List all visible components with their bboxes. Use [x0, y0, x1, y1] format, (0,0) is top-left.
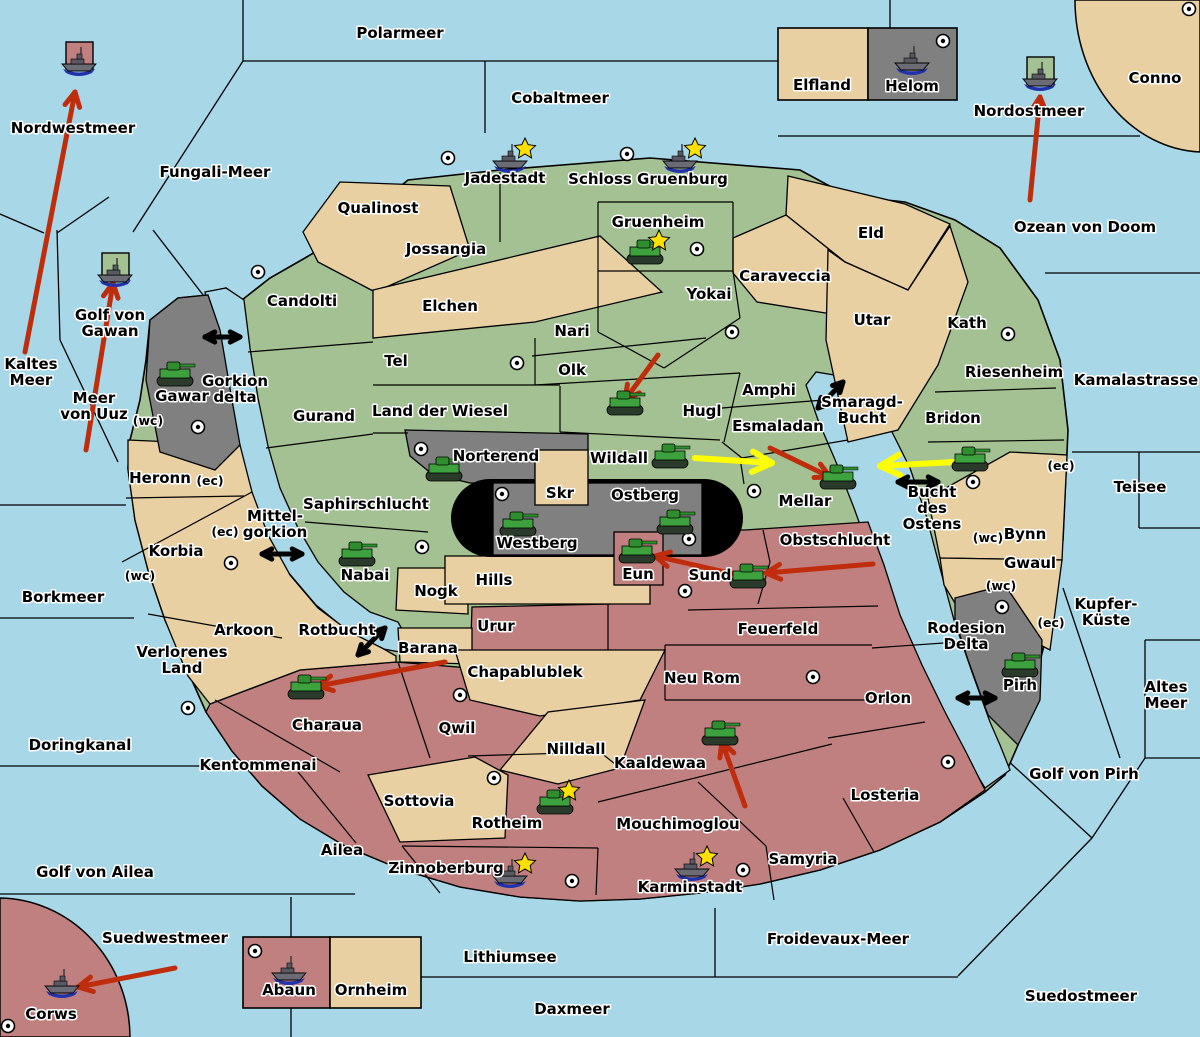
label-utar: Utar — [854, 311, 891, 329]
label-ec: (ec) — [1047, 458, 1074, 473]
label-gwaul: Gwaul — [1004, 554, 1056, 572]
label-rotheim: Rotheim — [472, 814, 543, 832]
label-mittel: Mittel-gorkion — [243, 507, 308, 541]
label-jadestadt: Jadestadt — [464, 169, 546, 187]
label-elfland: Elfland — [793, 76, 851, 94]
supply-center-dot — [511, 357, 524, 370]
label-esmaladan: Esmaladan — [732, 417, 824, 435]
supply-center-dot — [182, 702, 195, 715]
label-eld: Eld — [858, 224, 884, 242]
label-lithiumsee: Lithiumsee — [463, 948, 556, 966]
supply-center-dot — [192, 421, 205, 434]
label-land-der-wiesel: Land der Wiesel — [372, 402, 508, 420]
label-riesenheim: Riesenheim — [965, 363, 1063, 381]
label-heronn: Heronn — [129, 469, 191, 487]
label-hugl: Hugl — [682, 402, 721, 420]
label-mellar: Mellar — [779, 492, 833, 510]
label-samyria: Samyria — [769, 850, 838, 868]
supply-center-dot — [1183, 3, 1196, 16]
supply-center-dot — [252, 266, 265, 279]
supply-center-dot — [442, 152, 455, 165]
supply-center-dot — [691, 243, 704, 256]
label-qwil: Qwil — [439, 719, 476, 737]
label-candolti: Candolti — [267, 292, 337, 310]
label-wc: (wc) — [125, 568, 155, 583]
label-schloss-gruenburg: Schloss Gruenburg — [568, 170, 728, 188]
label-wc: (wc) — [973, 530, 1003, 545]
label-rotbucht: Rotbucht — [298, 621, 375, 639]
supply-center-dot — [967, 476, 980, 489]
label-kentommenai: Kentommenai — [199, 756, 316, 774]
label-losteria: Losteria — [851, 786, 920, 804]
label-wc: (wc) — [133, 413, 163, 428]
label-suedostmeer: Suedostmeer — [1025, 987, 1138, 1005]
supply-center-dot — [415, 443, 428, 456]
label-golf-von: Golf vonGawan — [75, 306, 145, 340]
supply-center-dot — [937, 35, 950, 48]
supply-center-dot — [737, 864, 750, 877]
label-froidevaux-meer: Froidevaux-Meer — [767, 930, 910, 948]
label-bynn: Bynn — [1004, 525, 1047, 543]
supply-center-dot — [1002, 328, 1015, 341]
label-elchen: Elchen — [422, 297, 478, 315]
label-altes: AltesMeer — [1144, 678, 1187, 712]
supply-center-dot — [726, 326, 739, 339]
label-polarmeer: Polarmeer — [356, 24, 444, 42]
label-daxmeer: Daxmeer — [534, 1000, 610, 1018]
label-tel: Tel — [384, 352, 408, 370]
supply-center-dot — [807, 671, 820, 684]
label-arkoon: Arkoon — [214, 621, 274, 639]
supply-center-dot — [454, 689, 467, 702]
supply-center-dot — [488, 772, 501, 785]
label-pirh: Pirh — [1003, 676, 1037, 694]
label-zinnoberburg: Zinnoberburg — [388, 859, 504, 877]
label-fungali-meer: Fungali-Meer — [160, 163, 271, 181]
label-corws: Corws — [25, 1005, 77, 1023]
label-gruenheim: Gruenheim — [612, 213, 705, 231]
supply-center-dot — [996, 601, 1009, 614]
label-doringkanal: Doringkanal — [29, 736, 132, 754]
label-feuerfeld: Feuerfeld — [738, 620, 819, 638]
game-map-canvas: PolarmeerCobaltmeerFungali-MeerNordwestm… — [0, 0, 1200, 1037]
label-neu-rom: Neu Rom — [664, 669, 740, 687]
label-skr: Skr — [546, 484, 575, 502]
label-cobaltmeer: Cobaltmeer — [511, 89, 609, 107]
label-charaua: Charaua — [292, 716, 362, 734]
label-caraveccia: Caraveccia — [739, 267, 831, 285]
label-karminstadt: Karminstadt — [638, 878, 743, 896]
label-orlon: Orlon — [865, 689, 911, 707]
strategy-map: PolarmeerCobaltmeerFungali-MeerNordwestm… — [0, 0, 1200, 1037]
supply-center-dot — [683, 533, 696, 546]
label-bridon: Bridon — [925, 409, 981, 427]
label-obstschlucht: Obstschlucht — [780, 531, 891, 549]
label-chapablublek: Chapablublek — [467, 663, 583, 681]
label-hills: Hills — [476, 571, 513, 589]
label-kamalastrasse: Kamalastrasse — [1074, 371, 1198, 389]
label-ec: (ec) — [211, 524, 238, 539]
label-golf-von-ailea: Golf von Ailea — [36, 863, 154, 881]
supply-center-dot — [225, 557, 238, 570]
label-ec: (ec) — [196, 473, 223, 488]
label-teisee: Teisee — [1114, 478, 1167, 496]
supply-center-dot — [416, 541, 429, 554]
label-ostberg: Ostberg — [611, 486, 679, 504]
label-westberg: Westberg — [496, 534, 577, 552]
label-sund: Sund — [689, 566, 732, 584]
label-sottovia: Sottovia — [384, 792, 455, 810]
supply-center-dot — [679, 585, 692, 598]
label-ailea: Ailea — [321, 841, 363, 859]
label-ozean-von-doom: Ozean von Doom — [1014, 218, 1156, 236]
label-qualinost: Qualinost — [338, 199, 419, 217]
label-ec: (ec) — [1037, 615, 1064, 630]
supply-center-dot — [2, 1020, 15, 1033]
label-abaun: Abaun — [262, 981, 316, 999]
label-nordostmeer: Nordostmeer — [974, 102, 1085, 120]
label-suedwestmeer: Suedwestmeer — [102, 929, 228, 947]
label-yokai: Yokai — [685, 285, 731, 303]
supply-center-dot — [748, 485, 761, 498]
label-gawar: Gawar — [155, 387, 209, 405]
label-norterend: Norterend — [453, 447, 540, 465]
label-nordwestmeer: Nordwestmeer — [11, 119, 136, 137]
label-mouchimoglou: Mouchimoglou — [616, 815, 739, 833]
label-golf-von-pirh: Golf von Pirh — [1029, 765, 1139, 783]
label-kaltes: KaltesMeer — [4, 355, 57, 389]
label-nilldall: Nilldall — [546, 740, 605, 758]
label-conno: Conno — [1129, 69, 1182, 87]
label-gurand: Gurand — [293, 407, 355, 425]
label-borkmeer: Borkmeer — [22, 588, 105, 606]
label-eun: Eun — [622, 565, 654, 583]
label-olk: Olk — [558, 361, 587, 379]
label-saphirschlucht: Saphirschlucht — [303, 495, 429, 513]
supply-center-dot — [621, 148, 634, 161]
label-ornheim: Ornheim — [335, 981, 407, 999]
label-kupfer: Kupfer-Küste — [1074, 595, 1137, 629]
label-barana: Barana — [398, 639, 458, 657]
supply-center-dot — [496, 488, 509, 501]
label-korbia: Korbia — [148, 542, 203, 560]
label-nabai: Nabai — [341, 566, 390, 584]
label-kath: Kath — [947, 314, 987, 332]
label-kaaldewaa: Kaaldewaa — [614, 754, 706, 772]
supply-center-dot — [942, 756, 955, 769]
supply-center-dot — [249, 945, 262, 958]
label-amphi: Amphi — [742, 381, 796, 399]
label-nogk: Nogk — [414, 582, 459, 600]
label-wc: (wc) — [986, 578, 1016, 593]
supply-center-dot — [566, 875, 579, 888]
label-urur: Urur — [477, 617, 515, 635]
label-wildall: Wildall — [590, 449, 648, 467]
label-helom: Helom — [885, 77, 939, 95]
label-nari: Nari — [554, 322, 589, 340]
label-jossangia: Jossangia — [405, 240, 487, 258]
